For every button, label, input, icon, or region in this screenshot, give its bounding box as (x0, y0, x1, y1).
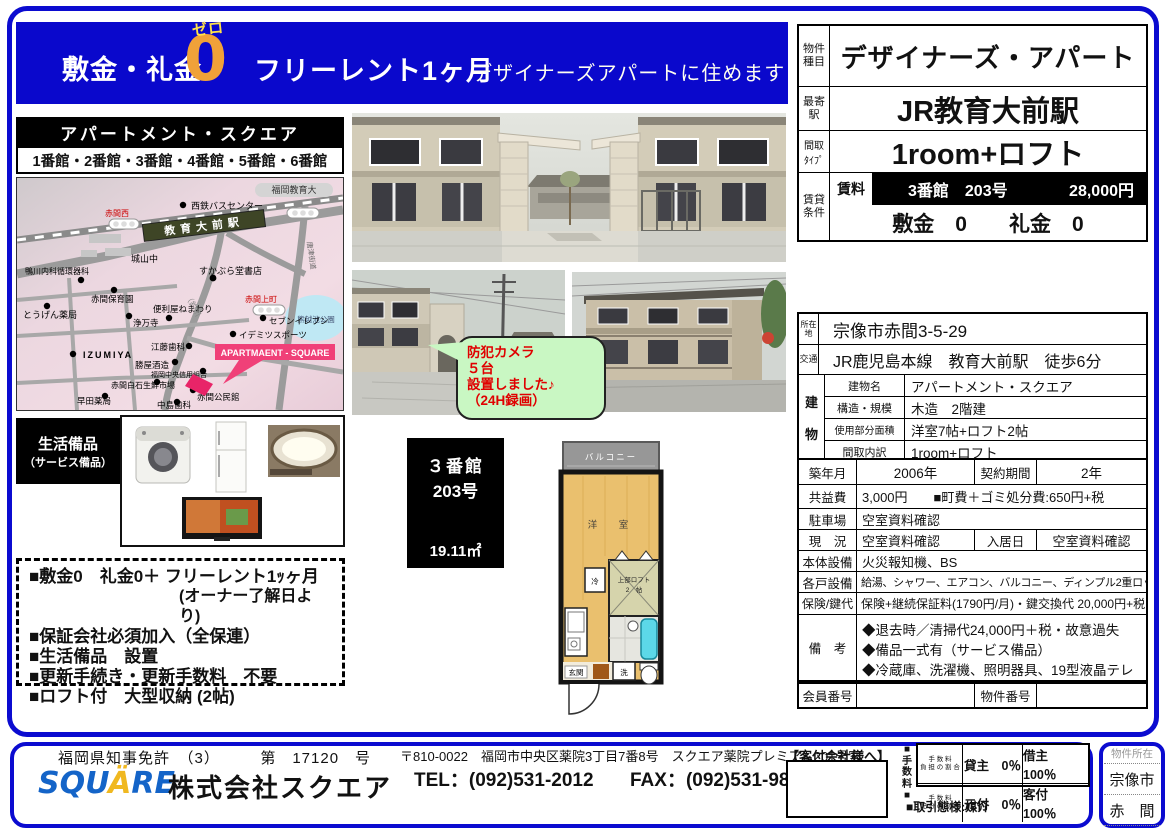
nearest-station-value: JR教育大前駅 (830, 87, 1146, 130)
contract-value: 2年 (1037, 460, 1146, 484)
map-label-idemitsu: イデミツスポーツ (239, 330, 307, 340)
current-status-value: 空室資料確認 (857, 530, 975, 550)
area-map-svg: 教育大前駅 福岡教育大 (17, 178, 343, 410)
complex-title: アパートメント・スクエア (16, 117, 344, 147)
condition-item: ■保証会社必須加入（全保連） (29, 627, 332, 647)
label-contract: 契約期間 (975, 460, 1037, 484)
label-floor-area: 使用部分面積 (825, 419, 905, 440)
map-label-hayata: 早田薬局 (77, 396, 111, 406)
movein-value: 空室資料確認 (1037, 530, 1146, 550)
condition-item-sub: (オーナー了解日より) (29, 587, 332, 627)
map-signal-east (287, 208, 319, 218)
label-property-number: 物件番号 (975, 684, 1037, 707)
equipment-label: 生活備品 （サービス備品） (16, 418, 120, 484)
label-common-fee: 共益費 (799, 485, 857, 508)
map-label-akama-nishi: 赤間西 (105, 209, 129, 218)
fee-kyakuzuke: 客付 100％ (1022, 784, 1088, 822)
area-map: 教育大前駅 福岡教育大 (16, 177, 344, 411)
fee-lessee: 借主 100％ (1022, 745, 1088, 783)
rent-band: 3番館 203号 28,000円 (872, 173, 1146, 205)
floor-plan: バルコニー 洋 室 上部ロフト 2 帖 冷 (553, 440, 669, 720)
fp-bathtub (641, 619, 657, 659)
security-camera-bubble: 防犯カメラ ５台 設置しました♪ （24H録画） (456, 336, 606, 420)
header-banner: 敷金・礼金 0 ゼロ フリーレント1ヶ月 デザイナーズアパートに住めます (16, 22, 788, 104)
map-signal-west (109, 219, 139, 229)
fee-lessor: 貸主 0％ (962, 745, 1022, 783)
conditions-list: ■敷金0 礼金0＋ フリーレント1ｯヶ月 (オーナー了解日より) ■保証会社必須… (16, 558, 345, 686)
label-structure: 構造・規模 (825, 397, 905, 418)
map-label-nakashima: 中島歯科 (157, 400, 192, 410)
company-fax: FAX：(092)531-9850 (630, 765, 811, 792)
photo-main-svg (352, 113, 786, 262)
parking-value: 空室資料確認 (857, 509, 1146, 529)
map-label-hoikuen: 赤間保育園 (91, 294, 134, 304)
rent-label: 賃料 (830, 173, 872, 205)
label-layout-type: 間取 ﾀｲﾌﾟ (799, 131, 830, 172)
label-remarks: 備 考 (799, 615, 857, 680)
label-built: 築年月 (799, 460, 857, 484)
bubble-tail (428, 342, 464, 363)
fp-door-arc (569, 684, 599, 714)
label-current-status: 現 況 (799, 530, 857, 550)
unit-building: ３番館 (427, 452, 484, 477)
fp-entrance-label: 玄関 (569, 667, 584, 677)
map-label-bookstore: すかぶら堂書店 (199, 265, 262, 276)
fp-room-label: 洋 室 (588, 519, 635, 531)
property-location-box: 物件所在 宗像市 赤 間 (1104, 746, 1160, 826)
condition-item: ■更新手続き・更新手数料 不要 (29, 667, 332, 687)
map-label-izumiya: IZUMIYA (83, 350, 133, 360)
fp-balcony-label: バルコニー (585, 452, 637, 462)
flyer-page: 敷金・礼金 0 ゼロ フリーレント1ヶ月 デザイナーズアパートに住めます 物件種… (0, 0, 1171, 834)
map-label-bus-center: 西鉄バスセンター (191, 200, 263, 211)
fp-entrance-mat (593, 664, 609, 679)
member-number-table: 会員番号 物件番号 (797, 682, 1148, 709)
label-access: 交通 (799, 345, 819, 374)
terms-table: 築年月 2006年 契約期間 2年 共益費 3,000円 ■町費＋ゴミ処分費:6… (797, 458, 1148, 682)
building-name-value: アパートメント・スクエア (905, 375, 1146, 396)
washing-machine-image (136, 427, 190, 483)
location-box-title: 物件所在 (1104, 746, 1160, 764)
structure-value: 木造 2階建 (905, 397, 1146, 418)
label-insurance: 保険/鍵代 (799, 593, 857, 614)
property-summary-table: 物件種目 デザイナーズ・アパート 最寄駅 JR教育大前駅 間取 ﾀｲﾌﾟ 1ro… (797, 24, 1148, 242)
map-label-tougen: とうげん薬局 (23, 309, 77, 320)
rent-price: 28,000円 (1069, 177, 1134, 201)
property-number-value (1037, 684, 1146, 707)
condition-item: ■生活備品 設置 (29, 647, 332, 667)
banner-subtitle: デザイナーズアパートに住めます (472, 57, 785, 86)
fp-fridge-label: 冷 (591, 576, 599, 586)
fp-sink (628, 621, 638, 631)
deposit-line: 敷金 0 礼金 0 (830, 205, 1146, 240)
company-name: 株式会社スクエア (168, 768, 392, 805)
summary-row-station: 最寄駅 JR教育大前駅 (799, 86, 1146, 130)
built-value: 2006年 (857, 460, 975, 484)
map-label-etou: 江藤歯科 (151, 342, 186, 352)
summary-row-layout: 間取 ﾀｲﾌﾟ 1room+ロフト (799, 130, 1146, 172)
fp-loft-label1: 上部ロフト (618, 575, 651, 584)
label-unit-equip: 各戸設備 (799, 572, 857, 592)
floor-plan-svg: バルコニー 洋 室 上部ロフト 2 帖 冷 (553, 440, 669, 720)
access-value: JR鹿児島本線 教育大前駅 徒歩6分 (819, 345, 1146, 374)
layout-type-value: 1room+ロフト (830, 131, 1146, 172)
map-label-katsuya: 勝屋酒造 (135, 360, 170, 370)
remarks-value: ◆退去時／清掃代24,000円＋税・故意過失 ◆備品一式有（サービス備品） ◆冷… (857, 615, 1146, 680)
label-main-equip: 本体設備 (799, 551, 857, 571)
main-equip-value: 火災報知機、BS (857, 551, 1146, 571)
label-building-name: 建物名 (825, 375, 905, 396)
member-number-value (857, 684, 975, 707)
banner-free-rent: フリーレント1ヶ月 (254, 49, 494, 88)
map-label-apartment-square: APARTMAENT - SQUARE (221, 348, 330, 358)
map-signal-kamimachi (253, 305, 285, 315)
photo-main-entrance (352, 113, 786, 262)
ceiling-light-image (268, 425, 340, 477)
unit-area: 19.11㎡ (430, 540, 482, 561)
banner-deposit-text: 敷金・礼金 (62, 48, 202, 87)
property-type-value: デザイナーズ・アパート (830, 26, 1146, 86)
complex-buildings: 1番館・2番館・3番館・4番館・5番館・6番館 (16, 147, 344, 174)
tv-image (182, 497, 262, 541)
map-label-market: 赤間白石生鮮市場 (111, 380, 175, 390)
unit-equip-value: 給湯、シャワー、エアコン、バルコニー、ディンプル2重ロック、1口コンロ (857, 572, 1146, 592)
label-location: 所在地 (799, 314, 819, 344)
map-label-joumanji: 浄万寺 (133, 318, 159, 328)
transaction-type: ■取引態様:媒介 (906, 798, 989, 815)
condition-item: ■敷金0 礼金0＋ フリーレント1ｯヶ月 (29, 567, 332, 587)
condition-item: ■ロフト付 大型収納 (2帖) (29, 687, 332, 707)
map-label-university: 福岡教育大 (271, 184, 316, 195)
label-building: 建物 (799, 375, 825, 462)
summary-row-rental: 賃貸条件 賃料 3番館 203号 28,000円 敷金 0 礼金 0 (799, 172, 1146, 240)
map-label-shiroyama: 城山中 (131, 253, 158, 264)
rent-unit: 3番館 203号 (908, 177, 1008, 201)
map-label-benriya: 便利屋ねまわり (153, 304, 213, 314)
insurance-value: 保険+継続保証料(1790円/月)・鍵交換代 20,000円+税 (857, 593, 1146, 614)
fp-toilet (640, 663, 658, 684)
map-label-seven: セブンイレブン (269, 316, 329, 326)
appliance-photos-svg (122, 417, 342, 544)
label-rental-terms: 賃貸条件 (799, 173, 830, 240)
map-label-kamogawa: 鴨川内科循環器科 (25, 266, 89, 276)
location-box-town: 赤 間 (1104, 795, 1160, 826)
fee-heading: ■手数料■ (900, 744, 914, 802)
appliance-photos (120, 415, 345, 547)
location-value: 宗像市赤間3-5-29 (819, 314, 1146, 344)
unit-room: 203号 (433, 477, 478, 502)
location-table: 所在地 宗像市赤間3-5-29 交通 JR鹿児島本線 教育大前駅 徒歩6分 建物… (797, 312, 1148, 464)
license-number: 福岡県知事免許 （3） 第 17120 号 (58, 747, 371, 768)
label-property-type: 物件種目 (799, 26, 830, 86)
fee-burden-label: 手 数 料負 担 の 割 合 (918, 745, 962, 783)
label-member-number: 会員番号 (799, 684, 857, 707)
fee-table: 手 数 料負 担 の 割 合 貸主 0％ 借主 100％ 手 数 料配 分 の … (916, 743, 1090, 787)
unit-info-box: ３番館 203号 19.11㎡ (407, 438, 504, 568)
refrigerator-image (216, 422, 246, 492)
company-logo: SQUÄRE (38, 766, 175, 801)
label-parking: 駐車場 (799, 509, 857, 529)
agent-box (786, 760, 888, 818)
label-movein: 入居日 (975, 530, 1037, 550)
banner-zero-kana: ゼロ (191, 16, 225, 40)
location-box-city: 宗像市 (1104, 764, 1160, 795)
map-label-akama-kamimachi: 赤間上町 (245, 295, 277, 304)
summary-row-type: 物件種目 デザイナーズ・アパート (799, 26, 1146, 86)
common-fee-value: 3,000円 ■町費＋ゴミ処分費:650円+税 (857, 485, 1146, 508)
fp-washer-label: 洗 (620, 667, 628, 677)
label-nearest-station: 最寄駅 (799, 87, 830, 130)
company-tel: TEL：(092)531-2012 (414, 765, 594, 792)
fp-loft-label2: 2 帖 (626, 585, 643, 594)
floor-area-value: 洋室7帖+ロフト2帖 (905, 419, 1146, 440)
